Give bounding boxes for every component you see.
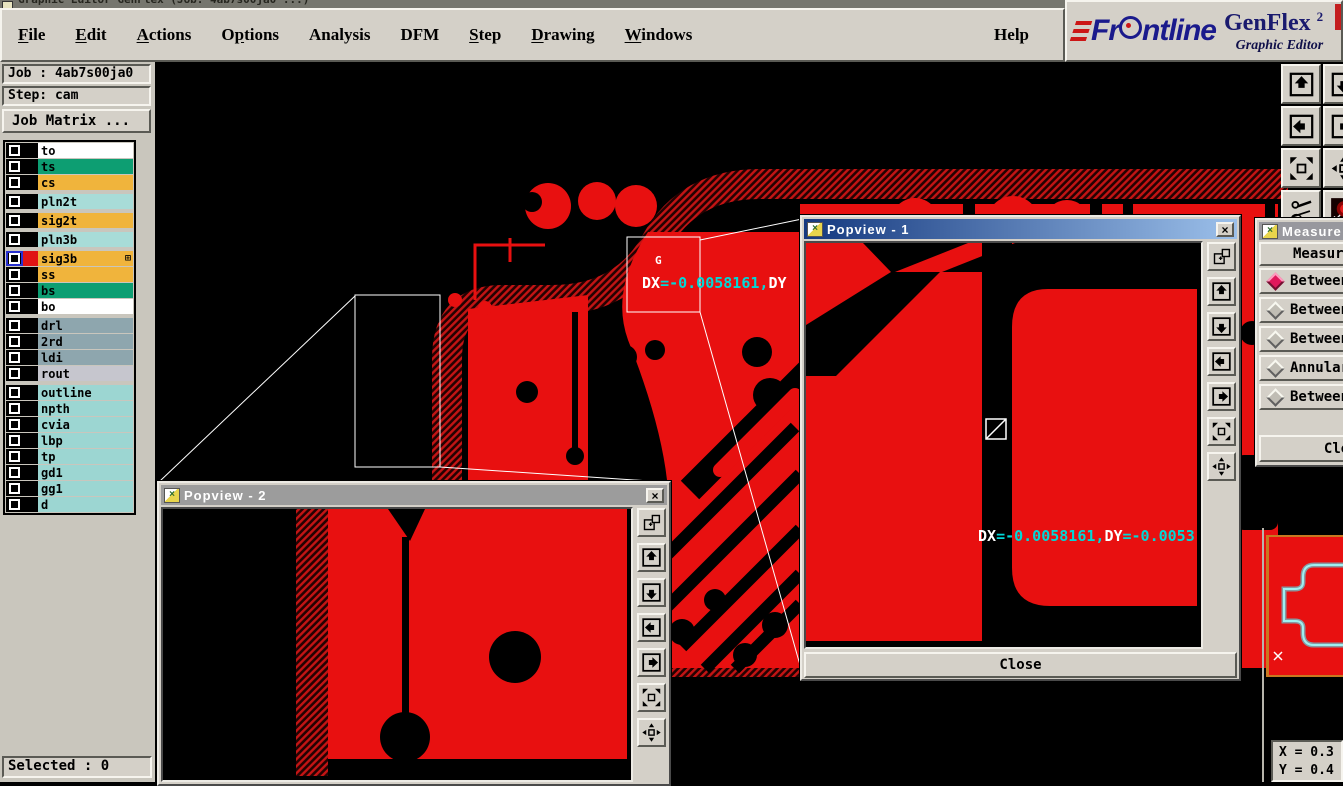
product-name: GenFlex 2 <box>1224 9 1323 37</box>
pan-left-button[interactable] <box>1281 106 1321 146</box>
frontline-speedlines-icon <box>1070 21 1092 41</box>
layer-swatch-pln2t[interactable] <box>23 194 38 209</box>
pan-down-button[interactable] <box>637 578 666 607</box>
pan-up-button[interactable] <box>1207 277 1236 306</box>
layer-name-drl[interactable]: drl <box>38 318 133 333</box>
measure-option-0[interactable]: Between <box>1259 268 1343 294</box>
layer-checkbox-d[interactable] <box>6 497 23 512</box>
layer-row-npth[interactable]: npth <box>6 401 133 416</box>
layer-swatch-rout[interactable] <box>23 366 38 381</box>
pan-down-button[interactable] <box>1323 64 1343 104</box>
layer-row-drl[interactable]: drl <box>6 318 133 333</box>
layer-name-d[interactable]: d <box>38 497 133 512</box>
pan-right-icon <box>1330 113 1343 140</box>
layer-name-pln3b[interactable]: pln3b <box>38 232 133 247</box>
pan-up-button[interactable] <box>1281 64 1321 104</box>
main-toolbar <box>1281 64 1343 230</box>
center-view-button[interactable] <box>1207 452 1236 481</box>
layer-name-ts[interactable]: ts <box>38 159 133 174</box>
measure-option-2[interactable]: Between <box>1259 326 1343 352</box>
pan-right-button[interactable] <box>1207 382 1236 411</box>
g-marker: G <box>655 254 662 267</box>
popview2-window: × Popview - 2 × <box>157 481 671 786</box>
measure-panel: × Measure Po Measure BetweenBetweenBetwe… <box>1255 218 1343 467</box>
layer-swatch-bo[interactable] <box>23 299 38 314</box>
step-name-field: Step: cam <box>2 86 151 106</box>
layer-checkbox-ss[interactable] <box>6 267 23 282</box>
layer-checkbox-bo[interactable] <box>6 299 23 314</box>
menu-drawing[interactable]: Drawing <box>531 25 594 45</box>
layer-name-2rd[interactable]: 2rd <box>38 334 133 349</box>
layer-swatch-bs[interactable] <box>23 283 38 298</box>
layer-swatch-d[interactable] <box>23 497 38 512</box>
measure-option-3[interactable]: Annular <box>1259 355 1343 381</box>
job-name-field: Job : 4ab7s00ja0 <box>2 64 151 84</box>
layer-swatch-tp[interactable] <box>23 449 38 464</box>
layer-checkbox-to[interactable] <box>6 143 23 158</box>
app-icon: × <box>1262 224 1278 239</box>
popview1-titlebar[interactable]: × Popview - 1 × <box>804 219 1237 239</box>
measure-option-label: Between <box>1290 302 1343 318</box>
layer-row-bs[interactable]: bs <box>6 283 133 298</box>
layer-row-ts[interactable]: ts <box>6 159 133 174</box>
popview1-window: × Popview - 1 × DX=-0.0058161,DY=-0.0053… <box>800 215 1241 681</box>
layer-checkbox-bs[interactable] <box>6 283 23 298</box>
layer-name-cs[interactable]: cs <box>38 175 133 190</box>
pan-down-button[interactable] <box>1207 312 1236 341</box>
layer-checkbox-sig2t[interactable] <box>6 213 23 228</box>
layer-list: totscspln2tsig2tpln3bsig3b⊞ssbsbodrl2rdl… <box>3 140 136 515</box>
layer-name-to[interactable]: to <box>38 143 133 158</box>
zoom-extents-button[interactable] <box>1207 417 1236 446</box>
popview1-toolbar <box>1205 241 1237 649</box>
layer-checkbox-cs[interactable] <box>6 175 23 190</box>
measure-panel-header: Measure <box>1259 242 1343 266</box>
layer-checkbox-gg1[interactable] <box>6 481 23 496</box>
zoom-extents-icon <box>1211 421 1232 442</box>
measure-option-label: Between <box>1290 389 1343 405</box>
layer-name-ss[interactable]: ss <box>38 267 133 282</box>
brand-logo-panel: Frntline GenFlex 2 Graphic Editor <box>1065 0 1343 62</box>
menu-windows[interactable]: Windows <box>625 25 693 45</box>
duplicate-view-icon <box>1211 246 1232 267</box>
pan-down-icon <box>641 582 662 603</box>
layer-swatch-sig3b[interactable] <box>23 251 38 266</box>
center-view-icon <box>1211 456 1232 477</box>
layer-checkbox-npth[interactable] <box>6 401 23 416</box>
duplicate-view-icon <box>641 512 662 533</box>
layer-row-d[interactable]: d <box>6 497 133 512</box>
popview2-titlebar[interactable]: × Popview - 2 × <box>161 485 667 505</box>
measure-option-label: Annular <box>1290 360 1343 376</box>
layer-swatch-gd1[interactable] <box>23 465 38 480</box>
popview1-title: Popview - 1 <box>827 222 910 237</box>
layer-swatch-sig2t[interactable] <box>23 213 38 228</box>
pan-left-icon <box>1211 351 1232 372</box>
pan-left-button[interactable] <box>637 613 666 642</box>
measure-options: BetweenBetweenBetweenAnnularBetween <box>1257 268 1343 410</box>
layer-row-gg1[interactable]: gg1 <box>6 481 133 496</box>
app-window-icon <box>2 1 13 8</box>
popview1-measure-readout: DX=-0.0058161,DY=-0.0053 <box>978 527 1195 545</box>
layer-swatch-npth[interactable] <box>23 401 38 416</box>
duplicate-view-button[interactable] <box>1207 242 1236 271</box>
layer-row-pln2t[interactable]: pln2t <box>6 194 133 209</box>
layer-row-cvia[interactable]: cvia <box>6 417 133 432</box>
popview1-close-button[interactable]: Close <box>804 652 1237 678</box>
layer-swatch-ldi[interactable] <box>23 350 38 365</box>
pan-down-icon <box>1330 71 1343 98</box>
cursor-x: X = 0.3 <box>1279 744 1341 762</box>
layer-checkbox-sig3b[interactable] <box>6 251 23 266</box>
right-panel-divider <box>1262 528 1264 782</box>
radio-diamond-icon[interactable] <box>1266 388 1284 406</box>
menu-step[interactable]: Step <box>469 25 501 45</box>
menubar: FileEditActionsOptionsAnalysisDFMStepDra… <box>0 8 1065 62</box>
pan-left-icon <box>641 617 662 638</box>
pan-right-icon <box>1211 386 1232 407</box>
measure-option-1[interactable]: Between <box>1259 297 1343 323</box>
canvas-measure-readout: DX=-0.0058161,DY <box>642 274 787 292</box>
layer-checkbox-drl[interactable] <box>6 318 23 333</box>
layer-row-ldi[interactable]: ldi <box>6 350 133 365</box>
pan-down-icon <box>1211 316 1232 337</box>
app-icon: × <box>807 222 823 237</box>
menu-options[interactable]: Options <box>221 25 279 45</box>
layer-name-rout[interactable]: rout <box>38 366 133 381</box>
layer-checkbox-gd1[interactable] <box>6 465 23 480</box>
layer-name-sig2t[interactable]: sig2t <box>38 213 133 228</box>
layer-swatch-lbp[interactable] <box>23 433 38 448</box>
layer-name-gg1[interactable]: gg1 <box>38 481 133 496</box>
measure-option-label: Between <box>1290 273 1343 289</box>
radio-diamond-icon[interactable] <box>1266 301 1284 319</box>
layer-checkbox-tp[interactable] <box>6 449 23 464</box>
job-matrix-button[interactable]: Job Matrix ... <box>2 109 151 133</box>
layer-swatch-ts[interactable] <box>23 159 38 174</box>
product-tagline: Graphic Editor <box>1224 38 1323 54</box>
pan-right-button[interactable] <box>637 648 666 677</box>
feature-shape <box>1269 537 1343 671</box>
radio-diamond-icon[interactable] <box>1266 330 1284 348</box>
layer-name-ldi[interactable]: ldi <box>38 350 133 365</box>
layer-row-tp[interactable]: tp <box>6 449 133 464</box>
layer-swatch-cs[interactable] <box>23 175 38 190</box>
layer-row-rout[interactable]: rout <box>6 366 133 381</box>
zoom-extents-icon <box>641 687 662 708</box>
layer-name-sig3b[interactable]: sig3b⊞ <box>38 251 133 266</box>
layer-name-tp[interactable]: tp <box>38 449 133 464</box>
popview1-close-icon[interactable]: × <box>1216 222 1234 237</box>
layer-swatch-drl[interactable] <box>23 318 38 333</box>
version-sliver <box>1335 4 1341 30</box>
layer-name-bs[interactable]: bs <box>38 283 133 298</box>
layer-name-cvia[interactable]: cvia <box>38 417 133 432</box>
layer-name-npth[interactable]: npth <box>38 401 133 416</box>
layer-row-2rd[interactable]: 2rd <box>6 334 133 349</box>
measure-panel-titlebar[interactable]: × Measure Po <box>1259 222 1343 240</box>
menu-actions[interactable]: Actions <box>137 25 192 45</box>
measure-option-4[interactable]: Between <box>1259 384 1343 410</box>
pan-up-icon <box>1211 281 1232 302</box>
layer-name-lbp[interactable]: lbp <box>38 433 133 448</box>
menu-edit[interactable]: Edit <box>75 25 106 45</box>
layer-checkbox-pln2t[interactable] <box>6 194 23 209</box>
menu-file[interactable]: File <box>18 25 45 45</box>
measure-panel-title: Measure Po <box>1282 224 1343 239</box>
center-view-icon <box>641 722 662 743</box>
cursor-coordinates: X = 0.3 Y = 0.4 <box>1271 740 1343 782</box>
pan-up-button[interactable] <box>637 543 666 572</box>
layer-checkbox-ts[interactable] <box>6 159 23 174</box>
layer-name-bo[interactable]: bo <box>38 299 133 314</box>
popview2-viewport[interactable] <box>161 507 633 782</box>
pan-right-icon <box>641 652 662 673</box>
layer-swatch-outline[interactable] <box>23 385 38 400</box>
frontline-o-dot-icon <box>1119 16 1142 39</box>
popview1-viewport[interactable]: DX=-0.0058161,DY=-0.0053 <box>804 241 1203 649</box>
layer-swatch-cvia[interactable] <box>23 417 38 432</box>
layer-row-cs[interactable]: cs <box>6 175 133 190</box>
measure-close-button[interactable]: Close <box>1259 435 1343 462</box>
layer-checkbox-ldi[interactable] <box>6 350 23 365</box>
layer-badge-icon: ⊞ <box>125 254 131 264</box>
layer-checkbox-rout[interactable] <box>6 366 23 381</box>
popview2-title: Popview - 2 <box>184 488 267 503</box>
layer-swatch-2rd[interactable] <box>23 334 38 349</box>
pan-up-icon <box>641 547 662 568</box>
layer-checkbox-pln3b[interactable] <box>6 232 23 247</box>
layer-checkbox-outline[interactable] <box>6 385 23 400</box>
radio-diamond-icon[interactable] <box>1266 272 1284 290</box>
center-view-icon <box>1330 155 1343 182</box>
menu-dfm[interactable]: DFM <box>400 25 439 45</box>
layer-row-to[interactable]: to <box>6 143 133 158</box>
layer-name-pln2t[interactable]: pln2t <box>38 194 133 209</box>
layer-swatch-pln3b[interactable] <box>23 232 38 247</box>
menu-help[interactable]: Help <box>994 25 1029 45</box>
menu-analysis[interactable]: Analysis <box>309 25 370 45</box>
layer-row-bo[interactable]: bo <box>6 299 133 314</box>
cursor-y: Y = 0.4 <box>1279 762 1341 780</box>
zoom-extents-button[interactable] <box>1281 148 1321 188</box>
measure-option-label: Between <box>1290 331 1343 347</box>
popview1-artwork <box>806 243 1197 643</box>
pan-left-icon <box>1288 113 1315 140</box>
layer-swatch-ss[interactable] <box>23 267 38 282</box>
layer-row-sig3b[interactable]: sig3b⊞ <box>6 251 133 266</box>
layer-swatch-to[interactable] <box>23 143 38 158</box>
feature-preview <box>1266 535 1343 677</box>
layer-row-lbp[interactable]: lbp <box>6 433 133 448</box>
layer-row-ss[interactable]: ss <box>6 267 133 282</box>
layer-checkbox-cvia[interactable] <box>6 417 23 432</box>
pan-up-icon <box>1288 71 1315 98</box>
pan-left-button[interactable] <box>1207 347 1236 376</box>
popview2-artwork <box>163 509 627 776</box>
zoom-extents-icon <box>1288 155 1315 182</box>
layer-row-pln3b[interactable]: pln3b <box>6 232 133 247</box>
brand-name: Frntline <box>1091 14 1216 48</box>
layer-name-outline[interactable]: outline <box>38 385 133 400</box>
layer-row-outline[interactable]: outline <box>6 385 133 400</box>
zoom-extents-button[interactable] <box>637 683 666 712</box>
center-view-button[interactable] <box>1323 148 1343 188</box>
layer-row-gd1[interactable]: gd1 <box>6 465 133 480</box>
radio-diamond-icon[interactable] <box>1266 359 1284 377</box>
left-panel: Job : 4ab7s00ja0 Step: cam Job Matrix ..… <box>0 62 155 782</box>
layer-checkbox-lbp[interactable] <box>6 433 23 448</box>
layer-swatch-gg1[interactable] <box>23 481 38 496</box>
center-view-button[interactable] <box>637 718 666 747</box>
popview2-toolbar <box>635 507 667 782</box>
selected-count: Selected : 0 <box>2 756 152 778</box>
app-icon: × <box>164 488 180 503</box>
duplicate-view-button[interactable] <box>637 508 666 537</box>
layer-name-gd1[interactable]: gd1 <box>38 465 133 480</box>
popview2-close-icon[interactable]: × <box>646 488 664 503</box>
pan-right-button[interactable] <box>1323 106 1343 146</box>
layer-checkbox-2rd[interactable] <box>6 334 23 349</box>
window-title: Graphic Editor GenFlex (Job: 4ab7s00ja0 … <box>18 0 309 6</box>
layer-row-sig2t[interactable]: sig2t <box>6 213 133 228</box>
